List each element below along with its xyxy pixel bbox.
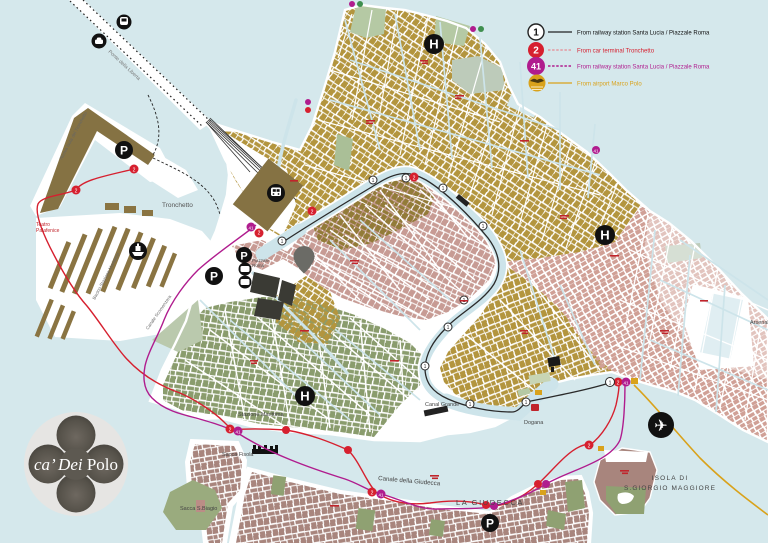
svg-text:From railway station Santa Luc: From railway station Santa Lucia / Piazz… (577, 65, 710, 71)
svg-text:P: P (240, 251, 247, 263)
svg-text:✈: ✈ (654, 418, 667, 435)
svg-text:Dogana: Dogana (524, 420, 544, 426)
svg-text:1: 1 (372, 178, 375, 184)
svg-text:1: 1 (442, 186, 445, 192)
svg-text:41: 41 (248, 226, 254, 231)
svg-text:Canal Grande: Canal Grande (425, 402, 459, 408)
svg-text:P: P (486, 517, 494, 531)
svg-text:41: 41 (531, 62, 541, 72)
svg-text:1: 1 (533, 28, 539, 39)
svg-text:2: 2 (413, 176, 416, 182)
svg-text:LA GIUDECCA: LA GIUDECCA (456, 498, 524, 507)
svg-text:41: 41 (623, 381, 629, 386)
svg-text:2: 2 (75, 189, 78, 195)
svg-text:Sacca S.Biagio: Sacca S.Biagio (180, 506, 217, 512)
svg-text:2: 2 (371, 491, 374, 497)
svg-text:From airport Marco Polo: From airport Marco Polo (577, 82, 642, 88)
svg-text:2: 2 (533, 46, 539, 57)
svg-text:Arsenale: Arsenale (750, 320, 768, 326)
svg-text:2: 2 (311, 210, 314, 216)
svg-text:From car terminal Tronchetto: From car terminal Tronchetto (577, 49, 655, 55)
svg-text:Stazione Marittima: Stazione Marittima (238, 412, 284, 418)
svg-text:2: 2 (588, 444, 591, 450)
svg-text:1: 1 (482, 224, 485, 230)
svg-text:From railway station Santa Luc: From railway station Santa Lucia / Piazz… (577, 31, 710, 37)
svg-text:S.GIORGIO MAGGIORE: S.GIORGIO MAGGIORE (624, 485, 716, 492)
svg-text:H: H (600, 228, 609, 243)
svg-text:1: 1 (609, 381, 612, 387)
svg-text:2: 2 (133, 168, 136, 174)
svg-text:Tronchetto: Tronchetto (162, 202, 193, 209)
svg-text:41: 41 (235, 430, 241, 435)
svg-text:1: 1 (281, 239, 284, 245)
svg-text:1: 1 (525, 400, 528, 406)
svg-text:41: 41 (378, 493, 384, 498)
svg-text:H: H (429, 37, 438, 52)
svg-text:2: 2 (229, 428, 232, 434)
svg-text:ISOLA DI: ISOLA DI (652, 475, 689, 482)
svg-text:2: 2 (258, 231, 261, 237)
svg-text:Palafenice: Palafenice (36, 228, 60, 234)
svg-text:1: 1 (424, 364, 427, 370)
svg-text:1: 1 (405, 176, 408, 182)
svg-text:2: 2 (617, 381, 620, 387)
svg-text:1: 1 (469, 402, 472, 408)
svg-text:P: P (210, 270, 218, 284)
svg-text:ca’ Dei Polo: ca’ Dei Polo (34, 455, 118, 474)
svg-text:1: 1 (447, 325, 450, 331)
svg-text:Sacca Fisola: Sacca Fisola (222, 452, 254, 458)
svg-text:Roma: Roma (252, 263, 265, 268)
svg-text:P: P (120, 144, 128, 158)
svg-text:H: H (300, 389, 309, 404)
svg-text:41: 41 (593, 149, 599, 154)
